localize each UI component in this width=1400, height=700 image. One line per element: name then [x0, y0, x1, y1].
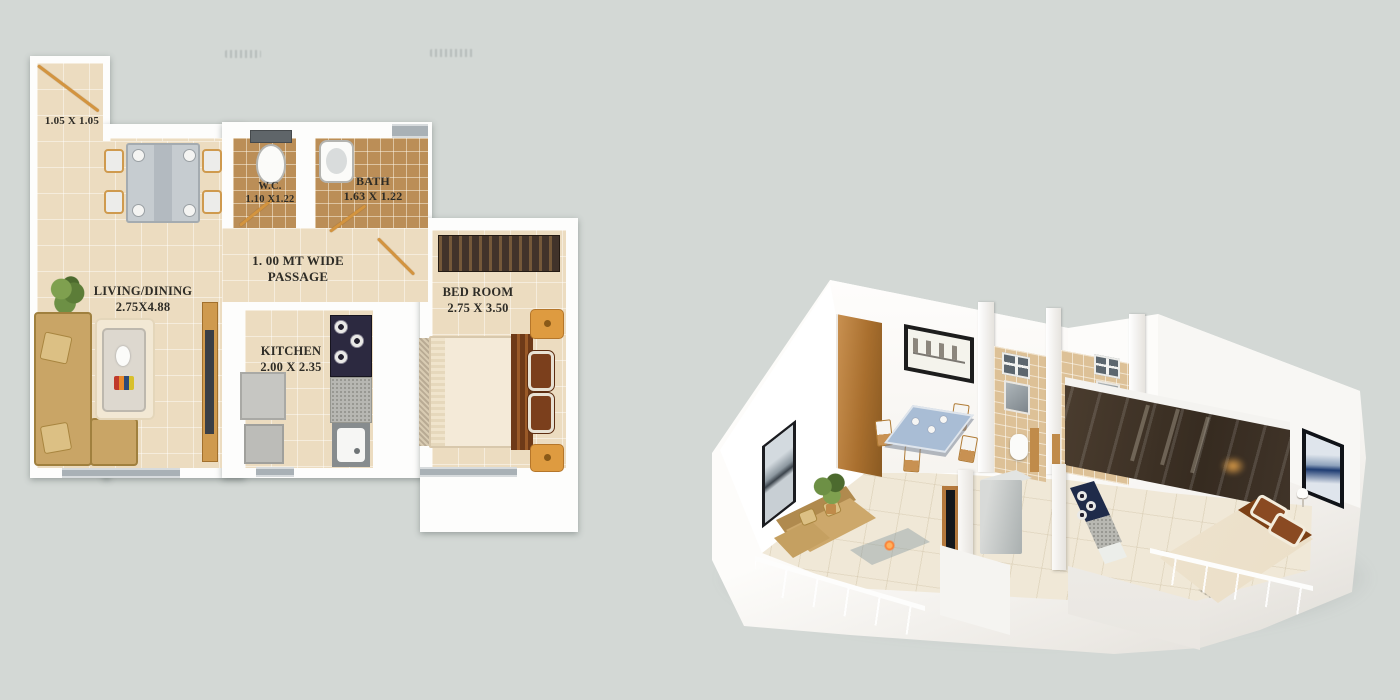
plant-icon: [812, 472, 848, 508]
bedroom-dim: 2.75 X 3.50: [417, 301, 539, 317]
plant-icon: [48, 275, 86, 315]
bedside-lamp: [1297, 488, 1308, 498]
entry-dim: 1.05 X 1.05: [34, 115, 110, 129]
floorplan-3d-render: [700, 258, 1400, 658]
bath-label: BATH 1.63 X 1.22: [323, 174, 423, 204]
table-decor-candle: [884, 540, 895, 551]
living-window: [62, 468, 180, 478]
nightstand-knob: [544, 454, 551, 461]
kitchen-label: KITCHEN 2.00 X 2.35: [232, 344, 350, 375]
wc-dim: 1.10 X1.22: [233, 193, 307, 206]
kitchen-sink-basin: [337, 428, 365, 462]
dining-chair: [202, 149, 222, 173]
dining-plate: [183, 204, 196, 217]
bedroom-label: BED ROOM 2.75 X 3.50: [417, 285, 539, 316]
stove-burner: [350, 334, 364, 348]
wc-label: W.C. 1.10 X1.22: [233, 180, 307, 206]
stove-burner: [1077, 491, 1087, 501]
bed-pillow: [528, 393, 554, 433]
living-name: LIVING/DINING: [83, 284, 203, 300]
wc-mirror: [1004, 380, 1030, 415]
wardrobe: [438, 235, 560, 272]
dining-chair: [104, 149, 124, 173]
stove-burner: [334, 320, 348, 334]
wall-art-sketch: [913, 338, 965, 364]
toilet-cistern: [250, 130, 292, 143]
dining-plate: [912, 418, 919, 425]
dining-chair: [903, 445, 921, 472]
kitchen-counter: [330, 377, 372, 423]
passage-line2: PASSAGE: [228, 269, 368, 285]
bedroom-name: BED ROOM: [417, 285, 539, 301]
dining-plate: [928, 426, 935, 433]
picture-art: [1306, 434, 1340, 504]
sofa-cushion: [40, 422, 72, 454]
partition-wall: [978, 302, 994, 472]
dining-plate: [940, 416, 947, 423]
coffee-table: [102, 328, 146, 412]
stove-burner: [1077, 510, 1087, 520]
sink-drain: [354, 448, 360, 454]
dining-chair: [104, 190, 124, 214]
toilet-bowl: [256, 144, 286, 184]
kitchen-window: [256, 467, 294, 477]
kitchen-half-wall: [1052, 464, 1066, 570]
bath-dim: 1.63 X 1.22: [323, 189, 423, 204]
nightstand-knob: [544, 320, 551, 327]
bedside-runner: [419, 338, 429, 446]
bed-sheet-fold: [431, 338, 445, 446]
dining-chair: [202, 190, 222, 214]
bed-pillow: [528, 351, 554, 391]
dining-plate: [132, 204, 145, 217]
bath-name: BATH: [323, 174, 423, 189]
floorplan-2d: 1.05 X 1.05 LIVING/DINING 2.75X4.88 W.C.…: [28, 54, 580, 480]
sofa-cushion: [39, 331, 72, 364]
table-books: [114, 376, 134, 390]
table-candle: [116, 346, 130, 366]
entrance-door: [836, 314, 882, 477]
toilet: [1010, 434, 1028, 460]
living-dining-label: LIVING/DINING 2.75X4.88: [83, 284, 203, 315]
passage-line1: 1. 00 MT WIDE: [228, 253, 368, 269]
dining-plate: [183, 149, 196, 162]
bedroom-window: [420, 467, 517, 477]
plant-pot: [826, 504, 836, 514]
sofa-section-corner: [90, 418, 138, 466]
fridge: [980, 480, 1022, 554]
wc-door-frame: [1030, 428, 1039, 472]
kitchen-name: KITCHEN: [232, 344, 350, 360]
wc-name: W.C.: [233, 180, 307, 193]
entry-dimension-label: 1.05 X 1.05: [34, 115, 110, 129]
dining-plate: [132, 149, 145, 162]
kitchen-cabinet: [244, 424, 284, 464]
bath-window: [392, 124, 428, 138]
stove-burner: [1086, 501, 1096, 511]
bedside-lamp-stem: [1302, 498, 1304, 507]
tv-screen: [205, 330, 214, 434]
passage-label: 1. 00 MT WIDE PASSAGE: [228, 253, 368, 286]
wardrobe-lamp-glow: [1220, 456, 1246, 476]
floorplan-brochure: 1.05 X 1.05 LIVING/DINING 2.75X4.88 W.C.…: [0, 0, 1400, 700]
fridge: [240, 372, 286, 420]
living-dim: 2.75X4.88: [83, 300, 203, 316]
washbasin-bowl: [326, 148, 347, 174]
kitchen-dim: 2.00 X 2.35: [232, 360, 350, 376]
